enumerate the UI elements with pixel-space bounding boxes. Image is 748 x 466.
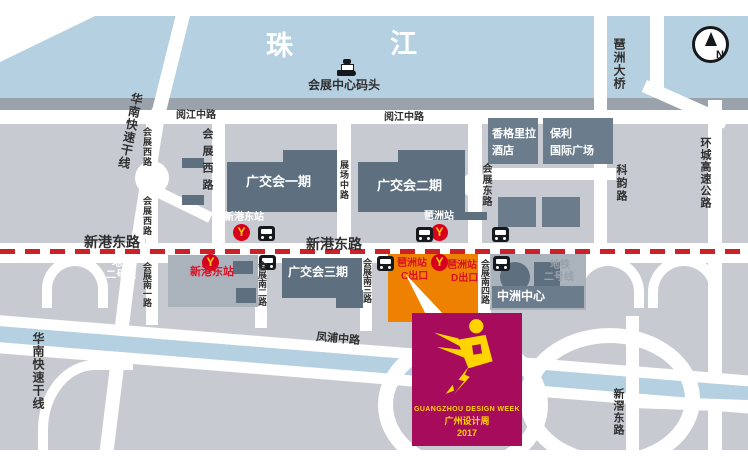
phase3-label: 广交会三期 (288, 266, 348, 280)
riverside-block-b (182, 195, 204, 205)
river-label-zhu: 珠 (266, 31, 293, 62)
north-arrow-icon: N (692, 26, 729, 63)
metro-logo-icon: Y (233, 224, 250, 241)
zhanchang-label: 展场中路 (338, 160, 351, 200)
logo-subtitle: 广州设计周 (412, 414, 522, 427)
pazhou-exit-c-line2: C出口 (401, 271, 428, 283)
bus-icon (416, 227, 433, 242)
pier-label: 会展中心码头 (308, 79, 380, 93)
xingang-station-label-above: 新港东站 (224, 212, 264, 224)
huizhan-nan2-label: 会展南二路 (256, 261, 269, 306)
shangrila-label-line1: 香格里拉 (492, 128, 536, 141)
poly-label-line2: 国际广场 (550, 145, 594, 158)
top-margin (0, 0, 748, 16)
metro-line2-label-left-line1: 地铁 (112, 258, 132, 270)
pazhou-exit-c-line1: 琶洲站 (397, 258, 427, 270)
xingang-station-label-below: 新港东站 (190, 266, 234, 279)
pazhou-area-map: N Y Y Y Y 珠 江 会展中心码头 阅江中路 阅江中路 新港东路 新港东路… (0, 0, 748, 466)
huizhanxi-label-a: 会展西路 (141, 127, 154, 167)
huizhandong-label: 会展东路 (478, 163, 493, 207)
pazhou-station-label-above: 琶洲站 (424, 211, 454, 223)
xinjiao-label: 新滘东路 (610, 388, 626, 436)
bus-icon (492, 227, 509, 242)
huizhanxi-label-c: 会展西路 (199, 128, 215, 196)
pazhou-exit-d-line2: D出口 (451, 273, 478, 285)
yuejiang-label-left: 阅江中路 (176, 110, 216, 122)
building-phase1-step (283, 150, 337, 164)
guangzhou-design-week-logo: GUANGZHOU DESIGN WEEK 广州设计周 2017 (412, 313, 522, 446)
building-hotel-row2a (498, 197, 536, 227)
phase2-label: 广交会二期 (377, 179, 442, 194)
huizhan-nan1-label: 会展南一路 (141, 262, 154, 307)
logo-title: GUANGZHOU DESIGN WEEK (412, 406, 522, 413)
river-label-jiang: 江 (390, 29, 417, 60)
metro-logo-icon: Y (431, 224, 448, 241)
ramp-arch-left (42, 256, 108, 308)
phase1-label: 广交会一期 (246, 175, 311, 190)
metro-line2-label-right-line2: 二号线 (544, 272, 574, 284)
building-phase3-ext (336, 290, 363, 308)
xingang-label-left: 新港东路 (84, 234, 140, 250)
metro-line2-label-left-line2: 二号线 (106, 270, 136, 282)
xingang-block-annex-b (236, 288, 256, 303)
ring-expressway-river-seg (650, 0, 664, 92)
runner-figure-icon (425, 317, 509, 399)
metro-logo-icon: Y (431, 254, 448, 271)
bus-icon (377, 256, 394, 271)
shangrila-label-line2: 酒店 (492, 145, 514, 158)
pazhou-exit-d-line1: 琶洲站 (447, 260, 477, 272)
bus-icon (258, 226, 275, 241)
bus-icon (493, 256, 510, 271)
zhongzhou-label: 中洲中心 (497, 290, 545, 304)
metro-line2-label-right-line1: 地铁 (550, 260, 570, 272)
xingang-label-center: 新港东路 (306, 236, 362, 252)
huizhan-nan4-label: 会展南四路 (479, 259, 492, 304)
ferry-pier-icon (337, 59, 357, 76)
xingang-block-annex-a (233, 261, 253, 274)
huizhan-nan3-label: 会展南三路 (361, 258, 374, 303)
huancheng-label: 环城高速公路 (697, 137, 713, 209)
yuejiang-label-center: 阅江中路 (384, 112, 424, 124)
north-letter: N (716, 49, 724, 61)
huizhanxi-label-b: 会展西路 (141, 196, 154, 236)
keyun-label: 科韵路 (613, 164, 629, 203)
building-phase2-step (398, 150, 465, 164)
poly-label-line1: 保利 (550, 128, 572, 141)
huanan-label-bottom: 华南快速干线 (30, 332, 47, 410)
yuejiang-road (0, 110, 748, 124)
building-hotel-row2b (542, 197, 580, 227)
logo-year: 2017 (412, 428, 522, 438)
pazhou-bridge-label: 琶洲大桥 (611, 38, 628, 90)
river-shore (0, 98, 748, 110)
bottom-margin (0, 450, 748, 466)
